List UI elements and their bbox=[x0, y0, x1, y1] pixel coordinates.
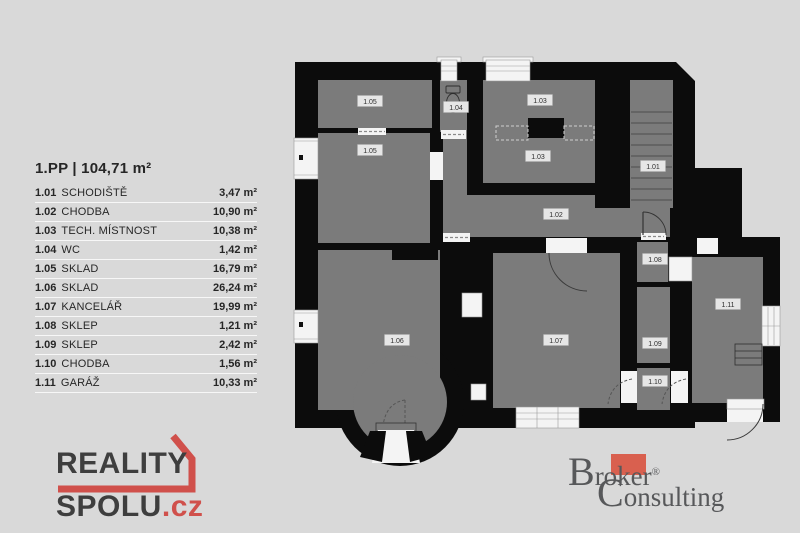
reality-spolu-logo: REALITY SPOLU.cz bbox=[56, 449, 203, 522]
room-label-chip: 1.05 bbox=[358, 145, 383, 156]
legend-row: 1.07KANCELÁŘ19,99 m² bbox=[35, 298, 257, 317]
room-code: 1.09 bbox=[35, 339, 56, 351]
svg-text:1.05: 1.05 bbox=[363, 99, 377, 106]
room-area: 1,21 m² bbox=[219, 320, 257, 332]
legend-row: 1.05SKLAD16,79 m² bbox=[35, 260, 257, 279]
svg-text:1.08: 1.08 bbox=[648, 257, 662, 264]
floorplan-page: 1.05 1.05 1.04 1.03 1.03 1.01 1.02 1.08 … bbox=[0, 0, 800, 533]
room-label-chip: 1.08 bbox=[643, 254, 668, 265]
svg-text:1.03: 1.03 bbox=[531, 154, 545, 161]
room-code: 1.04 bbox=[35, 244, 56, 256]
legend-title: 1.PP | 104,71 m² bbox=[35, 160, 257, 177]
legend-row: 1.06SKLAD26,24 m² bbox=[35, 279, 257, 298]
room-code: 1.10 bbox=[35, 358, 56, 370]
room-name: SKLEP bbox=[61, 339, 97, 351]
legend-row: 1.09SKLEP2,42 m² bbox=[35, 336, 257, 355]
room-name: SKLEP bbox=[61, 320, 97, 332]
room-area: 1,56 m² bbox=[219, 358, 257, 370]
svg-text:1.07: 1.07 bbox=[549, 338, 563, 345]
svg-text:1.10: 1.10 bbox=[648, 379, 662, 386]
legend-row: 1.03TECH. MÍSTNOST10,38 m² bbox=[35, 222, 257, 241]
room-label-chip: 1.06 bbox=[385, 335, 410, 346]
room-area: 26,24 m² bbox=[213, 282, 257, 294]
room-name: SKLAD bbox=[61, 263, 98, 275]
room-code: 1.07 bbox=[35, 301, 56, 313]
room-label-chip: 1.09 bbox=[643, 338, 668, 349]
reality-logo-line1: REALITY bbox=[56, 449, 203, 479]
legend-row: 1.04WC1,42 m² bbox=[35, 241, 257, 260]
room-label-chip: 1.10 bbox=[643, 376, 668, 387]
room-area: 16,79 m² bbox=[213, 263, 257, 275]
room-label-chip: 1.11 bbox=[716, 299, 741, 310]
room-label-chip: 1.03 bbox=[526, 151, 551, 162]
room-label-chip: 1.01 bbox=[641, 161, 666, 172]
room-code: 1.01 bbox=[35, 187, 56, 199]
legend-row: 1.11GARÁŽ10,33 m² bbox=[35, 374, 257, 393]
svg-text:1.03: 1.03 bbox=[533, 98, 547, 105]
room-area: 1,42 m² bbox=[219, 244, 257, 256]
room-name: WC bbox=[61, 244, 80, 256]
svg-text:1.02: 1.02 bbox=[549, 212, 563, 219]
broker-consulting-logo: Broker® Consulting bbox=[566, 452, 798, 520]
legend-row: 1.10CHODBA1,56 m² bbox=[35, 355, 257, 374]
room-code: 1.02 bbox=[35, 206, 56, 218]
room-code: 1.05 bbox=[35, 263, 56, 275]
room-code: 1.08 bbox=[35, 320, 56, 332]
reality-logo-tld: .cz bbox=[162, 490, 204, 523]
room-name: GARÁŽ bbox=[61, 377, 100, 389]
svg-text:1.05: 1.05 bbox=[363, 148, 377, 155]
svg-text:1.04: 1.04 bbox=[449, 105, 463, 112]
svg-text:1.06: 1.06 bbox=[390, 338, 404, 345]
room-name: SKLAD bbox=[61, 282, 98, 294]
room-name: KANCELÁŘ bbox=[61, 301, 122, 313]
room-code: 1.06 bbox=[35, 282, 56, 294]
room-label-chip: 1.05 bbox=[358, 96, 383, 107]
reality-logo-line2: SPOLU.cz bbox=[56, 492, 203, 522]
room-area: 3,47 m² bbox=[219, 187, 257, 199]
room-area: 10,90 m² bbox=[213, 206, 257, 218]
legend-row: 1.01SCHODIŠTĚ3,47 m² bbox=[35, 184, 257, 203]
room-area: 19,99 m² bbox=[213, 301, 257, 313]
room-area: 2,42 m² bbox=[219, 339, 257, 351]
room-area: 10,33 m² bbox=[213, 377, 257, 389]
svg-text:1.09: 1.09 bbox=[648, 341, 662, 348]
reality-logo-spolu: SPOLU bbox=[56, 490, 162, 523]
room-label-chip: 1.07 bbox=[544, 335, 569, 346]
room-label-chip: 1.02 bbox=[544, 209, 569, 220]
consulting-word: Consulting bbox=[597, 473, 724, 513]
legend: 1.PP | 104,71 m² 1.01SCHODIŠTĚ3,47 m² 1.… bbox=[35, 160, 257, 393]
room-name: SCHODIŠTĚ bbox=[61, 187, 127, 199]
room-label-chip: 1.04 bbox=[444, 102, 469, 113]
room-area: 10,38 m² bbox=[213, 225, 257, 237]
legend-row: 1.02CHODBA10,90 m² bbox=[35, 203, 257, 222]
svg-text:1.01: 1.01 bbox=[646, 164, 660, 171]
legend-row: 1.08SKLEP1,21 m² bbox=[35, 317, 257, 336]
svg-text:1.11: 1.11 bbox=[721, 302, 734, 309]
room-label-chip: 1.03 bbox=[528, 95, 553, 106]
room-code: 1.11 bbox=[35, 377, 56, 389]
room-name: CHODBA bbox=[61, 358, 109, 370]
room-name: TECH. MÍSTNOST bbox=[61, 225, 157, 237]
room-code: 1.03 bbox=[35, 225, 56, 237]
room-name: CHODBA bbox=[61, 206, 109, 218]
